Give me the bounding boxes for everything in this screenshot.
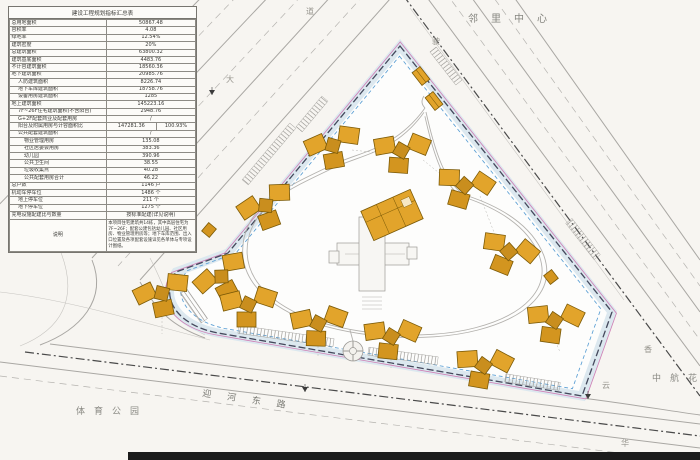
- indicator-row: 幼儿园390.96: [10, 153, 196, 160]
- indicator-row: 总用地面积50867.48: [10, 20, 196, 27]
- indicator-row: 阳台及附属用房与计容面积比147281.36100.93%: [10, 123, 196, 130]
- indicator-note-label: 说明: [10, 219, 107, 252]
- indicator-row: 容积率4.08: [10, 27, 196, 34]
- roundabout: [343, 341, 363, 361]
- indicator-row: 公共卫生间38.55: [10, 160, 196, 167]
- indicator-row: 设备用房建筑面积1285: [10, 93, 196, 100]
- indicator-row: 地下建筑面积20985.76: [10, 71, 196, 78]
- indicator-row: 7F~26F住宅建筑面积(不含阳台)2948.76: [10, 108, 196, 115]
- road-char-da: 大: [226, 74, 234, 84]
- indicator-table: 建设工程规划指标汇总表 总用地面积50867.48容积率4.08绿地率12.54…: [8, 6, 197, 253]
- indicator-table-grid: 总用地面积50867.48容积率4.08绿地率12.54%建筑密度20%总建筑面…: [9, 19, 196, 252]
- label-river-east-road: 迎河东路: [202, 387, 303, 413]
- indicator-row: 绿地率12.54%: [10, 34, 196, 41]
- building-utility: [202, 223, 217, 238]
- indicator-row: 公共配套用房合计46.22: [10, 175, 196, 182]
- road-char-yun: 云: [602, 381, 610, 390]
- road-char-hua: 华: [621, 438, 629, 448]
- indicator-row: 地下车库建筑面积18758.76: [10, 86, 196, 93]
- indicator-note-text: 本项目住宅建筑共14栋，其中高层住宅为7F~26F；配套公建包括幼儿园、社区用房…: [106, 219, 195, 252]
- indicator-note-row: 说明 本项目住宅建筑共14栋，其中高层住宅为7F~26F；配套公建包括幼儿园、社…: [10, 219, 196, 252]
- indicator-row: 建筑密度20%: [10, 42, 196, 49]
- label-sports-park: 体育公园: [76, 405, 148, 417]
- indicator-row: 社区居委会用房383.36: [10, 145, 196, 152]
- road-char-xiang: 香: [644, 344, 652, 354]
- indicator-row: 人防建筑面积8226.74: [10, 79, 196, 86]
- indicator-row: 地上建筑面积145223.16: [10, 101, 196, 108]
- road-char-dao: 道: [306, 6, 314, 16]
- indicator-row: 地上停车位211 个: [10, 197, 196, 204]
- indicator-row: G+2F配套商业及配套用房/: [10, 116, 196, 123]
- label-neighborhood-center: 邻里中心: [468, 12, 560, 25]
- indicator-row: 垃圾收集点40.28: [10, 167, 196, 174]
- building-marker: [302, 384, 308, 392]
- indicator-row: 地下停车位1275 个: [10, 204, 196, 211]
- road-char-shi: 驶: [432, 36, 440, 46]
- site-plan-page: 邻里中心 体育公园 中航花 迎河东路 道 大 驶 香 云 华 建设工程规划指标汇…: [0, 0, 700, 460]
- indicator-row: 物业管理用房135.08: [10, 138, 196, 145]
- indicator-row: 不计容建筑面积18560.36: [10, 64, 196, 71]
- indicator-row: 建筑基底面积4483.76: [10, 56, 196, 63]
- indicator-row: 总建筑面积63800.32: [10, 49, 196, 56]
- label-avic-garden: 中航花: [652, 372, 700, 384]
- bottom-bar: [128, 452, 700, 460]
- indicator-row: 总户数1146 户: [10, 182, 196, 189]
- indicator-row: 机动车停车位1486 个: [10, 189, 196, 196]
- indicator-table-title: 建设工程规划指标汇总表: [9, 7, 196, 19]
- indicator-row: 公共配套建筑面积/: [10, 130, 196, 137]
- indicator-row: 充电设施配建比与数量按标准配建(详见说明): [10, 212, 196, 219]
